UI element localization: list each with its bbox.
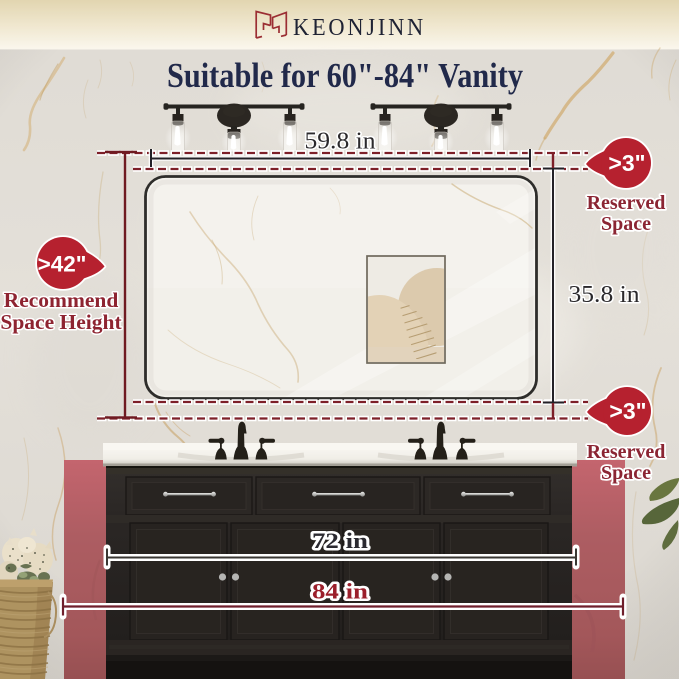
svg-text:Reserved: Reserved (587, 441, 666, 463)
svg-text:>42": >42" (38, 252, 87, 277)
svg-text:Space: Space (601, 462, 651, 484)
svg-text:Reserved: Reserved (587, 192, 666, 214)
svg-text:Suitable for 60"-84" Vanity: Suitable for 60"-84" Vanity (167, 56, 523, 95)
svg-text:Recommend: Recommend (4, 288, 119, 312)
svg-text:KEONJINN: KEONJINN (293, 15, 426, 41)
svg-text:Space: Space (601, 213, 651, 235)
svg-text:>3": >3" (608, 150, 645, 176)
svg-text:Space Height: Space Height (0, 310, 122, 334)
svg-text:35.8 in: 35.8 in (569, 282, 640, 308)
svg-text:59.8 in: 59.8 in (305, 129, 376, 155)
svg-text:72 in: 72 in (312, 528, 368, 553)
svg-text:>3": >3" (609, 398, 646, 424)
svg-text:84 in: 84 in (312, 579, 368, 604)
